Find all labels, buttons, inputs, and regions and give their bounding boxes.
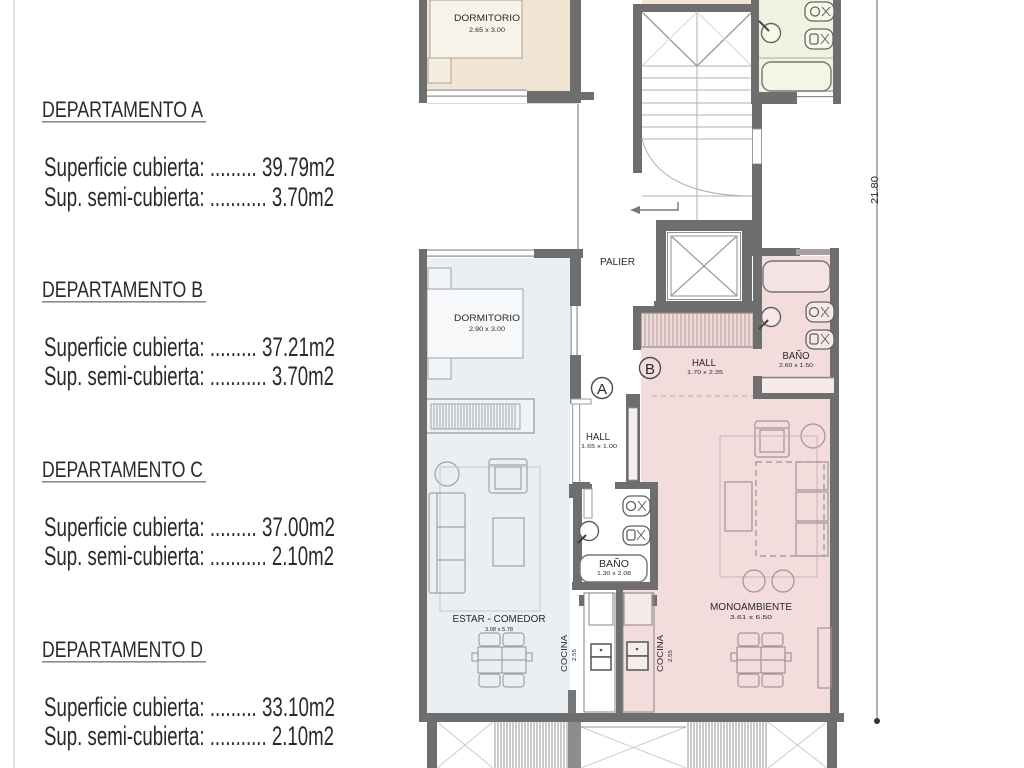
svg-text:Sup. semi-cubierta: ..........: Sup. semi-cubierta: ........... 3.70m2 [44,182,334,212]
svg-text:BAÑO: BAÑO [783,349,810,362]
svg-text:COCINA: COCINA [655,635,665,672]
svg-text:DEPARTAMENTO B: DEPARTAMENTO B [42,277,203,302]
svg-text:1.70 x 2.35: 1.70 x 2.35 [687,370,723,376]
svg-text:DEPARTAMENTO D: DEPARTAMENTO D [42,637,203,662]
svg-text:COCINA: COCINA [559,635,569,672]
svg-text:DORMITORIO: DORMITORIO [454,13,520,24]
svg-text:2.90 x 3.00: 2.90 x 3.00 [469,327,506,333]
svg-text:DORMITORIO: DORMITORIO [454,313,520,324]
svg-text:A: A [597,381,607,398]
svg-text:DEPARTAMENTO C: DEPARTAMENTO C [42,457,203,482]
svg-text:2.65 x 3.00: 2.65 x 3.00 [469,28,506,34]
svg-text:2.55: 2.55 [572,649,578,661]
svg-text:3.08 x 5.78: 3.08 x 5.78 [485,627,513,633]
svg-text:Superficie cubierta: .........: Superficie cubierta: ......... 37.00m2 [44,512,335,542]
svg-text:21.80: 21.80 [870,176,881,204]
svg-text:DEPARTAMENTO A: DEPARTAMENTO A [42,97,203,122]
svg-text:MONOAMBIENTE: MONOAMBIENTE [710,601,792,613]
svg-text:Sup. semi-cubierta: ..........: Sup. semi-cubierta: ........... 2.10m2 [44,721,334,751]
svg-text:HALL: HALL [586,432,610,443]
svg-text:HALL: HALL [692,358,716,369]
svg-text:BAÑO: BAÑO [599,557,629,570]
svg-text:1.65 x 1.00: 1.65 x 1.00 [581,444,617,450]
svg-text:Sup. semi-cubierta: ..........: Sup. semi-cubierta: ........... 3.70m2 [44,361,334,391]
svg-text:B: B [645,361,655,378]
svg-text:2.55: 2.55 [668,650,674,662]
svg-text:Superficie cubierta: .........: Superficie cubierta: ......... 33.10m2 [44,692,335,722]
svg-text:Superficie cubierta: .........: Superficie cubierta: ......... 39.79m2 [44,152,335,182]
svg-text:ESTAR - COMEDOR: ESTAR - COMEDOR [453,613,546,625]
svg-text:1.30 x 2.08: 1.30 x 2.08 [597,571,631,577]
svg-text:2.60 x 1.50: 2.60 x 1.50 [779,363,813,369]
svg-text:3.61 x 6.50: 3.61 x 6.50 [730,615,772,621]
svg-text:Superficie cubierta: .........: Superficie cubierta: ......... 37.21m2 [44,332,335,362]
svg-text:Sup. semi-cubierta: ..........: Sup. semi-cubierta: ........... 2.10m2 [44,541,334,571]
svg-text:PALIER: PALIER [600,256,635,268]
